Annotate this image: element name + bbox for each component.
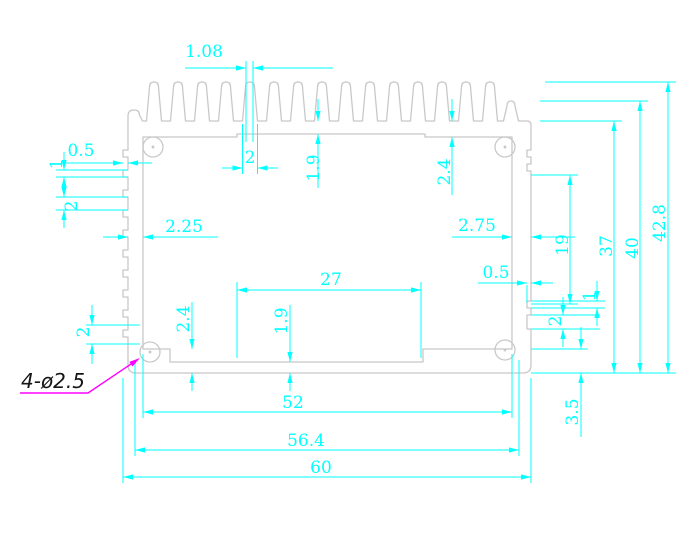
boss-center-mark-bl: [149, 351, 151, 353]
dim-ceiling-recess-width: 27: [320, 270, 342, 290]
dim-top-plate-side: 2.4: [435, 158, 455, 185]
hole-callout-text: 4-ø2.5: [21, 369, 85, 393]
extrusion-cavity-contour: [143, 134, 512, 362]
dimension-lines-layer: [56, 61, 676, 483]
dim-base-thickness: 3.5: [563, 398, 583, 425]
dim-overall-height: 42.8: [650, 204, 670, 242]
dim-overall-width: 60: [310, 458, 332, 478]
screw-boss-top-left: [143, 137, 163, 157]
dim-fin-base-width: 2: [245, 148, 256, 168]
dim-height-to-fin-base: 37: [597, 235, 617, 257]
dim-left-tooth-height: 1: [47, 159, 67, 170]
dim-fin-top-width: 1.08: [185, 42, 223, 62]
dim-right-notch-depth: 0.5: [482, 263, 509, 283]
dim-right-notch-large: 2: [546, 316, 566, 327]
dim-body-width: 56.4: [287, 431, 325, 451]
dim-cavity-width: 52: [282, 393, 304, 413]
dim-left-tooth-depth: 0.5: [67, 141, 94, 161]
boss-center-mark-tl: [152, 146, 154, 148]
dim-right-smooth-section: 19: [553, 234, 573, 256]
dim-left-tooth-gap: 2: [62, 201, 82, 212]
boss-center-mark-br: [504, 349, 506, 351]
dim-right-wall-thickness: 2.75: [458, 216, 496, 236]
boss-center-mark-tr: [504, 146, 506, 148]
dim-floor-side-thickness: 2.4: [174, 305, 194, 332]
dim-left-bottom-notch: 2: [74, 327, 94, 338]
dim-floor-channel-depth: 1.9: [272, 307, 292, 334]
dim-right-notch-small: 1: [580, 291, 600, 302]
dim-top-plate-mid: 1.9: [304, 154, 324, 181]
technical-drawing: 1.08 0.5 1 2 2.25 2 1.9 2.4 2.75 19 37 4…: [0, 0, 700, 558]
dim-left-wall-thickness: 2.25: [165, 217, 203, 237]
dim-height-to-edge-fin: 40: [623, 237, 643, 259]
dimension-text-layer: 1.08 0.5 1 2 2.25 2 1.9 2.4 2.75 19 37 4…: [21, 42, 670, 478]
drawing-canvas: 1.08 0.5 1 2 2.25 2 1.9 2.4 2.75 19 37 4…: [0, 0, 700, 558]
